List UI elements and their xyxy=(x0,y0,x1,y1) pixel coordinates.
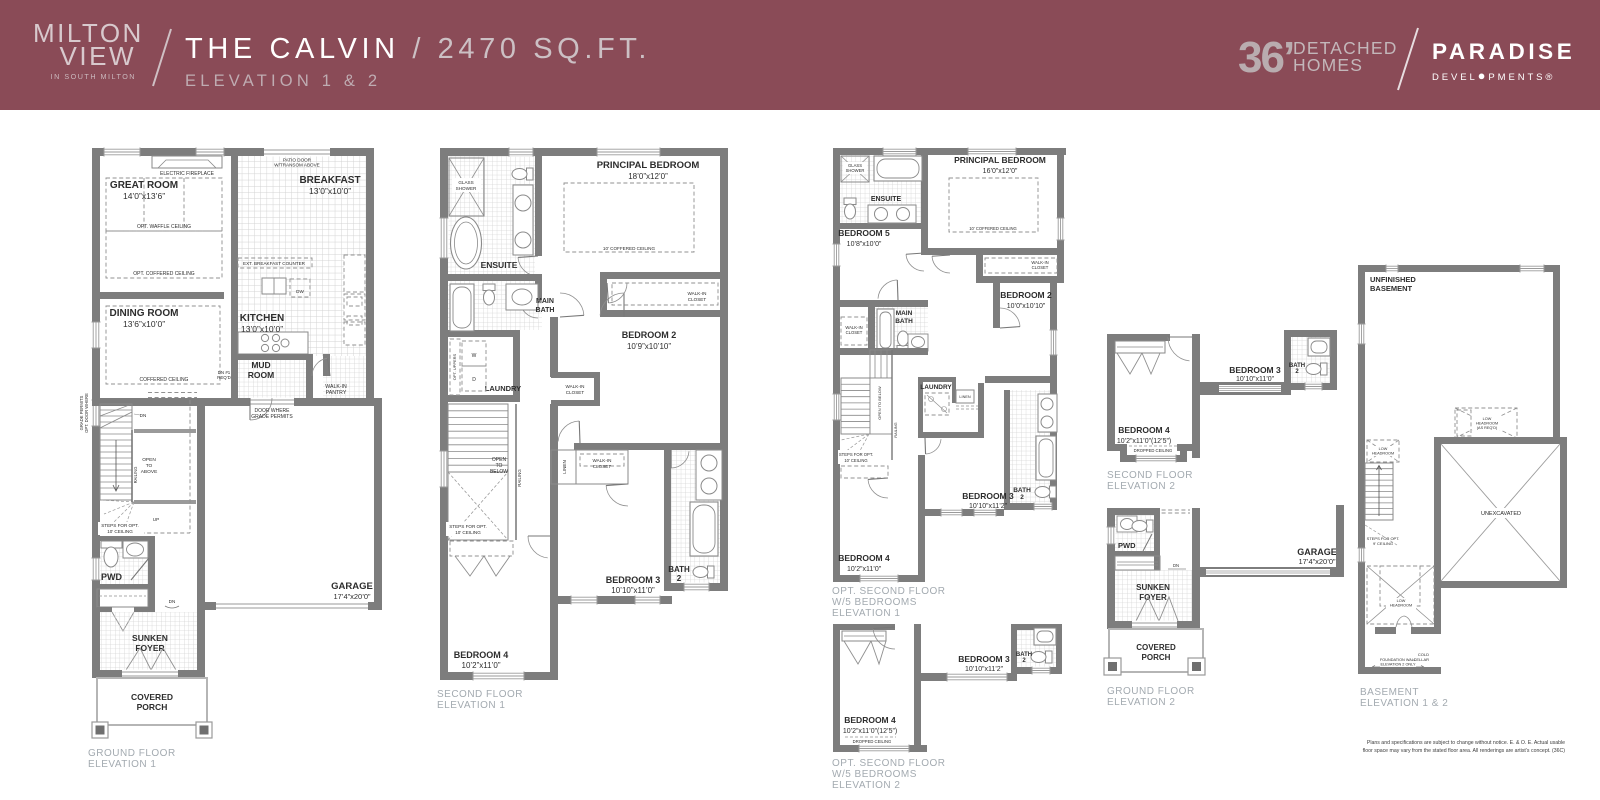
svg-text:10’10”x11’2”: 10’10”x11’2” xyxy=(965,666,1004,673)
svg-text:STEPS FOR OPT.: STEPS FOR OPT. xyxy=(839,452,873,457)
svg-text:SUNKEN: SUNKEN xyxy=(132,633,168,643)
svg-text:GARAGE: GARAGE xyxy=(331,581,373,592)
svg-text:WALK-IN: WALK-IN xyxy=(566,384,585,389)
svg-text:ROOM: ROOM xyxy=(248,370,274,380)
svg-text:BASEMENT: BASEMENT xyxy=(1360,687,1419,698)
svg-text:RAILING: RAILING xyxy=(894,422,898,437)
svg-text:CLOSET: CLOSET xyxy=(846,330,863,335)
svg-text:ELEVATION 2: ELEVATION 2 xyxy=(832,780,900,791)
svg-text:BEDROOM 3: BEDROOM 3 xyxy=(958,654,1010,664)
svg-text:SECOND FLOOR: SECOND FLOOR xyxy=(1107,470,1193,481)
svg-text:PANTRY: PANTRY xyxy=(326,390,347,396)
svg-text:PWD: PWD xyxy=(1118,541,1136,550)
svg-text:BELOW: BELOW xyxy=(490,469,508,475)
svg-text:REQ’D: REQ’D xyxy=(217,375,231,380)
svg-text:SHOWER: SHOWER xyxy=(846,168,865,173)
svg-text:OPT. SECOND FLOOR: OPT. SECOND FLOOR xyxy=(832,586,946,597)
svg-text:COFFERED CEILING: COFFERED CEILING xyxy=(140,377,189,383)
svg-text:16’0”x12’0”: 16’0”x12’0” xyxy=(983,168,1018,175)
svg-text:CLOSET: CLOSET xyxy=(593,464,612,469)
svg-text:PORCH: PORCH xyxy=(1142,653,1171,662)
svg-text:BEDROOM 4: BEDROOM 4 xyxy=(844,715,896,725)
svg-text:OPT. COFFERED CEILING: OPT. COFFERED CEILING xyxy=(133,271,195,277)
svg-text:13’0”x10’0”: 13’0”x10’0” xyxy=(241,324,283,334)
svg-text:ELEVATION 1: ELEVATION 1 xyxy=(832,608,900,619)
svg-text:DW: DW xyxy=(296,289,304,294)
svg-text:GRADE PERMITS: GRADE PERMITS xyxy=(79,395,84,430)
svg-text:DN: DN xyxy=(169,599,176,604)
svg-text:LOW: LOW xyxy=(1483,417,1492,421)
svg-text:BEDROOM 4: BEDROOM 4 xyxy=(838,553,890,563)
svg-text:BASEMENT: BASEMENT xyxy=(1370,284,1413,293)
svg-text:ELEVATION 2 ONLY: ELEVATION 2 ONLY xyxy=(1380,663,1415,667)
svg-text:floor space may vary from the: floor space may vary from the stated flo… xyxy=(1363,748,1566,754)
svg-text:DN: DN xyxy=(140,413,147,418)
svg-text:W/5 BEDROOMS: W/5 BEDROOMS xyxy=(832,597,917,608)
svg-text:10’8”x10’0”: 10’8”x10’0” xyxy=(847,241,882,248)
svg-text:13’6”x10’0”: 13’6”x10’0” xyxy=(123,319,165,329)
svg-text:OPEN TO BELOW: OPEN TO BELOW xyxy=(877,386,882,420)
svg-text:ENSUITE: ENSUITE xyxy=(871,196,902,203)
svg-text:KITCHEN: KITCHEN xyxy=(240,313,284,324)
svg-text:PRINCIPAL BEDROOM: PRINCIPAL BEDROOM xyxy=(597,160,700,171)
svg-text:(AS REQ’D): (AS REQ’D) xyxy=(1477,426,1498,430)
svg-text:PORCH: PORCH xyxy=(137,702,168,712)
svg-text:GROUND FLOOR: GROUND FLOOR xyxy=(1107,686,1195,697)
svg-text:ELECTRIC FIREPLACE: ELECTRIC FIREPLACE xyxy=(160,171,215,177)
svg-text:FOYER: FOYER xyxy=(1139,593,1167,602)
svg-text:COVERED: COVERED xyxy=(131,692,173,702)
svg-text:SUNKEN: SUNKEN xyxy=(1136,583,1170,592)
svg-text:WALK-IN: WALK-IN xyxy=(593,458,612,463)
svg-text:LAUNDRY: LAUNDRY xyxy=(485,384,521,393)
svg-text:BATH: BATH xyxy=(668,565,690,574)
svg-text:SHOWER: SHOWER xyxy=(456,186,477,191)
svg-text:COVERED: COVERED xyxy=(1136,643,1176,652)
svg-text:BREAKFAST: BREAKFAST xyxy=(299,175,360,186)
svg-text:10’ CEILING: 10’ CEILING xyxy=(455,530,481,535)
svg-text:STEPS FOR OPT.: STEPS FOR OPT. xyxy=(449,524,487,529)
svg-text:HEADROOM: HEADROOM xyxy=(1390,604,1412,608)
svg-text:HEADROOM: HEADROOM xyxy=(1476,422,1498,426)
svg-text:LOW: LOW xyxy=(1397,599,1406,603)
svg-text:BEDROOM 3: BEDROOM 3 xyxy=(1229,365,1281,375)
svg-text:W: W xyxy=(472,353,477,359)
svg-text:10’2”x11’0”(12’5”): 10’2”x11’0”(12’5”) xyxy=(843,728,897,735)
svg-text:17’4”x20’0”: 17’4”x20’0” xyxy=(1298,557,1336,566)
svg-text:10’ CEILING: 10’ CEILING xyxy=(107,529,133,534)
svg-text:2: 2 xyxy=(1020,494,1024,501)
svg-text:HEADROOM: HEADROOM xyxy=(1372,452,1394,456)
svg-text:10’0”x10’10”: 10’0”x10’10” xyxy=(1007,303,1046,310)
svg-text:10’ CEILING: 10’ CEILING xyxy=(844,458,867,463)
svg-text:WALK-IN: WALK-IN xyxy=(688,291,707,296)
svg-text:STEPS FOR OPT.: STEPS FOR OPT. xyxy=(101,523,139,528)
svg-text:W/5 BEDROOMS: W/5 BEDROOMS xyxy=(832,769,917,780)
svg-text:2: 2 xyxy=(677,574,682,583)
svg-text:ELEVATION 2: ELEVATION 2 xyxy=(1107,481,1175,492)
svg-text:10’9”x10’10”: 10’9”x10’10” xyxy=(627,342,671,351)
svg-text:10’10”x11’0”: 10’10”x11’0” xyxy=(611,586,655,595)
svg-text:BEDROOM 4: BEDROOM 4 xyxy=(454,650,509,660)
svg-text:MAIN: MAIN xyxy=(896,310,913,317)
svg-text:PRINCIPAL BEDROOM: PRINCIPAL BEDROOM xyxy=(954,155,1046,165)
svg-text:17’4”x20’0”: 17’4”x20’0” xyxy=(333,592,371,601)
svg-text:CLOSET: CLOSET xyxy=(1032,265,1049,270)
svg-text:10’ COFFERED CEILING: 10’ COFFERED CEILING xyxy=(603,246,656,251)
svg-text:BEDROOM 5: BEDROOM 5 xyxy=(838,228,890,238)
svg-text:9’ CEILING: 9’ CEILING xyxy=(1373,541,1393,546)
svg-text:GROUND FLOOR: GROUND FLOOR xyxy=(88,748,176,759)
svg-text:LOW: LOW xyxy=(1379,447,1388,451)
svg-text:DROPPED CEILING: DROPPED CEILING xyxy=(1134,448,1173,453)
svg-text:DN: DN xyxy=(1173,563,1179,568)
svg-text:BEDROOM 3: BEDROOM 3 xyxy=(606,575,661,585)
svg-text:RAILING: RAILING xyxy=(517,469,522,487)
svg-text:CLOSET: CLOSET xyxy=(566,390,585,395)
svg-text:D: D xyxy=(472,377,476,383)
svg-text:Plans and specifications are s: Plans and specifications are subject to … xyxy=(1367,740,1565,746)
svg-text:ELEVATION 1: ELEVATION 1 xyxy=(437,700,505,711)
svg-text:OPT. SECOND FLOOR: OPT. SECOND FLOOR xyxy=(832,758,946,769)
svg-text:BATH: BATH xyxy=(1013,487,1031,494)
svg-text:LAUNDRY: LAUNDRY xyxy=(920,384,952,391)
svg-text:ELEVATION 1: ELEVATION 1 xyxy=(88,759,156,770)
svg-text:GLASS: GLASS xyxy=(458,180,473,185)
svg-text:10’ COFFERED CEILING: 10’ COFFERED CEILING xyxy=(969,226,1017,231)
svg-text:10’2”x11’0”: 10’2”x11’0” xyxy=(462,661,501,670)
svg-text:ENSUITE: ENSUITE xyxy=(481,260,518,270)
svg-text:EXT. BREAKFAST COUNTER: EXT. BREAKFAST COUNTER xyxy=(243,261,306,266)
svg-text:OPT. WAFFLE CEILING: OPT. WAFFLE CEILING xyxy=(137,224,191,230)
svg-text:BEDROOM 4: BEDROOM 4 xyxy=(1118,425,1170,435)
svg-text:13’0”x10’0”: 13’0”x10’0” xyxy=(309,186,351,196)
svg-text:PWD: PWD xyxy=(101,572,122,582)
svg-text:SECOND FLOOR: SECOND FLOOR xyxy=(437,689,523,700)
svg-text:CLOSET: CLOSET xyxy=(688,297,707,302)
svg-text:LINEN: LINEN xyxy=(562,460,567,474)
svg-text:BEDROOM 2: BEDROOM 2 xyxy=(622,330,677,340)
svg-text:OPT. UPPERS: OPT. UPPERS xyxy=(452,353,457,380)
svg-text:OPT. DOOR WHERE: OPT. DOOR WHERE xyxy=(84,393,89,433)
svg-text:MUD: MUD xyxy=(251,360,270,370)
svg-text:MAIN: MAIN xyxy=(536,298,554,305)
svg-text:W/TRANSOM ABOVE: W/TRANSOM ABOVE xyxy=(274,163,319,168)
svg-text:ELEVATION 2: ELEVATION 2 xyxy=(1107,697,1175,708)
svg-text:BEDROOM 2: BEDROOM 2 xyxy=(1000,290,1052,300)
svg-text:ELEVATION 1 & 2: ELEVATION 1 & 2 xyxy=(1360,698,1448,709)
svg-text:LINEN: LINEN xyxy=(959,395,970,399)
svg-text:18’0”x12’0”: 18’0”x12’0” xyxy=(628,172,668,181)
svg-text:10’10”x11’0”: 10’10”x11’0” xyxy=(1236,376,1275,383)
svg-text:BATH: BATH xyxy=(895,318,913,325)
svg-text:10’2”x11’0”: 10’2”x11’0” xyxy=(847,566,882,573)
svg-text:RAILING: RAILING xyxy=(133,467,138,484)
svg-text:10’2”x11’0”(12’5”): 10’2”x11’0”(12’5”) xyxy=(1117,438,1171,445)
svg-text:BATH: BATH xyxy=(536,307,555,314)
svg-text:UNEXCAVATED: UNEXCAVATED xyxy=(1481,511,1521,517)
svg-text:GRADE PERMITS: GRADE PERMITS xyxy=(251,414,293,420)
svg-text:UNFINISHED: UNFINISHED xyxy=(1370,275,1416,284)
svg-text:OPEN: OPEN xyxy=(142,457,156,463)
svg-text:BEDROOM 3: BEDROOM 3 xyxy=(962,491,1014,501)
svg-text:GARAGE: GARAGE xyxy=(1297,547,1337,557)
svg-text:DROPPED CEILING: DROPPED CEILING xyxy=(853,739,892,744)
svg-text:TO: TO xyxy=(146,463,153,469)
svg-text:DINING ROOM: DINING ROOM xyxy=(110,308,179,319)
svg-text:ABOVE: ABOVE xyxy=(141,469,158,475)
svg-text:UP: UP xyxy=(153,517,159,522)
svg-text:FOUNDATION WALL: FOUNDATION WALL xyxy=(1380,658,1416,662)
